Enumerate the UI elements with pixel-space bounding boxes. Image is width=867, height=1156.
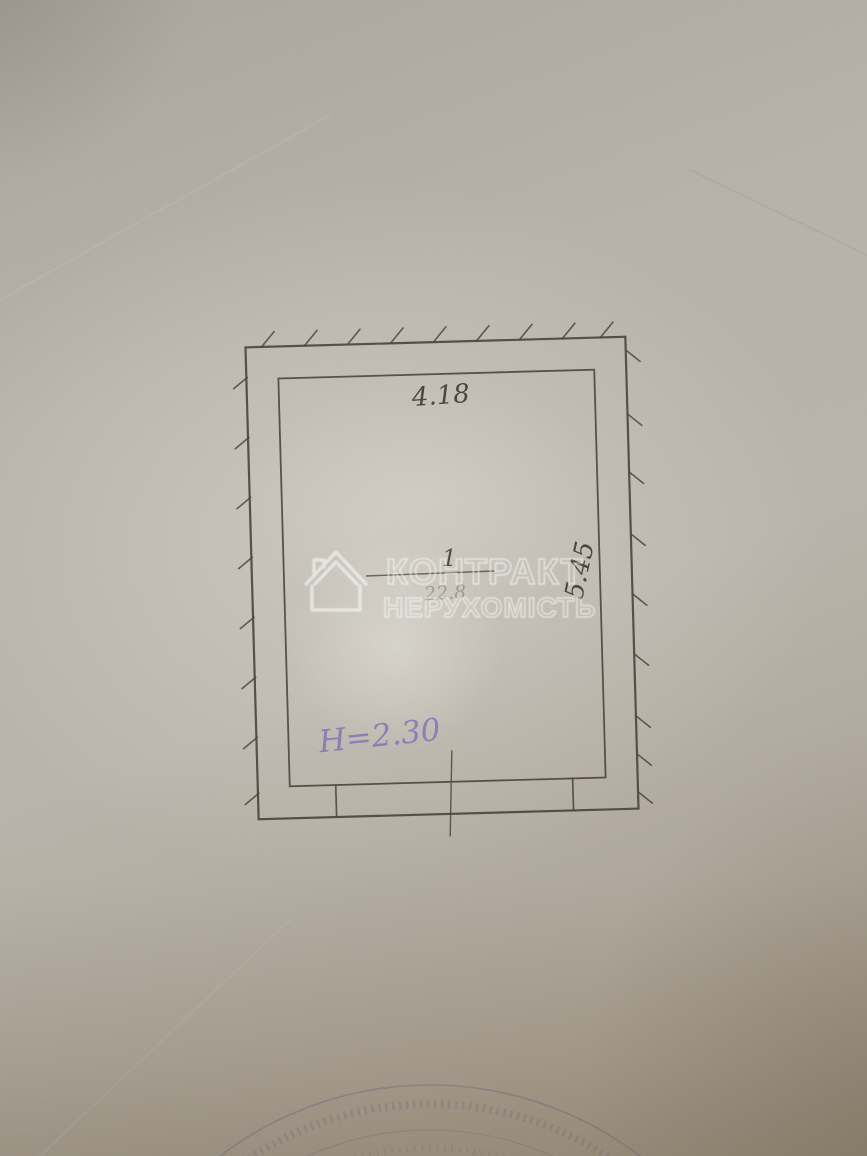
- plan-drawing: 4.18 5.45 1 22.8 H=2.30 КОНТРАКТ НЕРУХОМ…: [0, 0, 867, 1156]
- floor-plan-photo: 4.18 5.45 1 22.8 H=2.30 КОНТРАКТ НЕРУХОМ…: [0, 0, 867, 1156]
- photo-grain-overlay: [0, 0, 867, 1156]
